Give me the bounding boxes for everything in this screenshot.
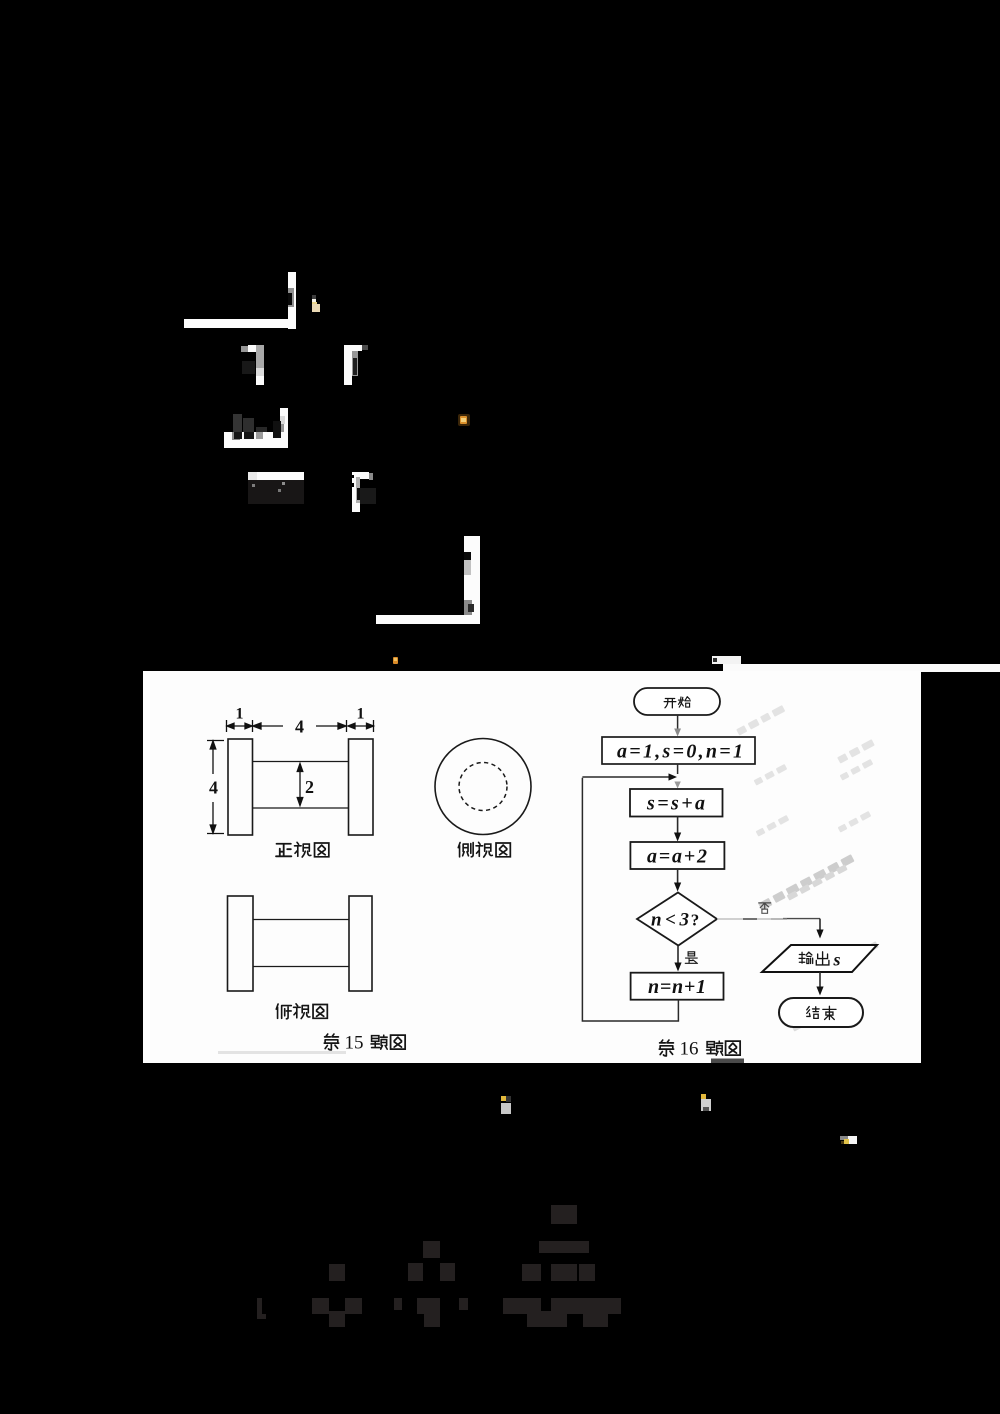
- svg-text:n<3: n<3: [651, 910, 689, 931]
- svg-text:1: 1: [236, 706, 244, 723]
- svg-text:a=1,s=0,n=1: a=1,s=0,n=1: [617, 741, 743, 763]
- svg-text:a=a+2: a=a+2: [647, 846, 707, 868]
- svg-text:4: 4: [209, 778, 218, 798]
- svg-text:16: 16: [680, 1039, 699, 1060]
- svg-text:?: ?: [691, 911, 700, 930]
- svg-text:n=n+1: n=n+1: [648, 976, 706, 998]
- svg-text:4: 4: [295, 717, 304, 737]
- svg-text:s: s: [832, 950, 840, 970]
- svg-text:15: 15: [345, 1033, 364, 1054]
- svg-text:2: 2: [305, 777, 314, 797]
- svg-text:1: 1: [357, 706, 365, 723]
